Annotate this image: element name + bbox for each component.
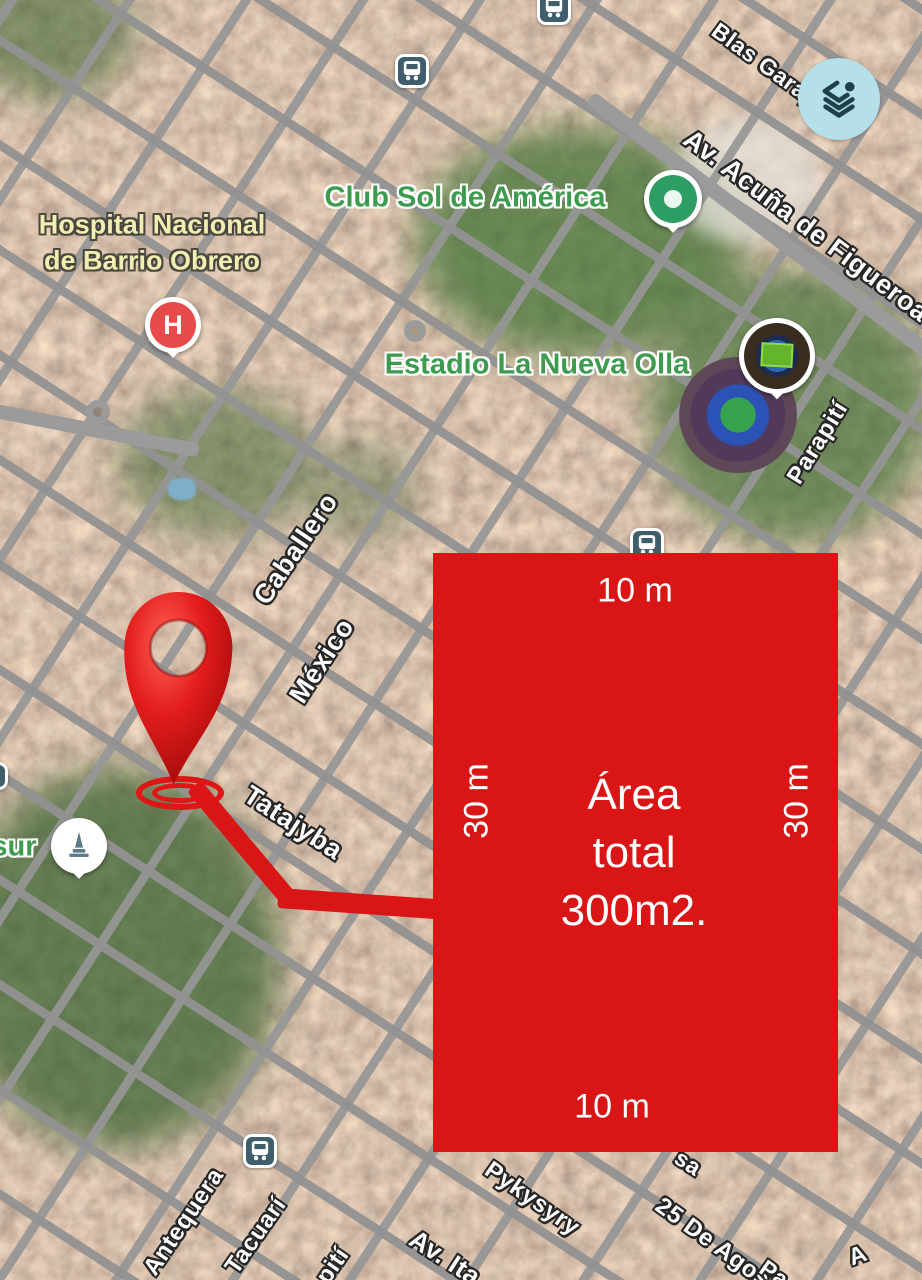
stadium-pitch: [760, 342, 793, 368]
area-total-line2: total: [561, 824, 708, 882]
bus-stop-icon[interactable]: [537, 0, 571, 25]
layers-button[interactable]: [798, 58, 880, 140]
pool: [168, 478, 196, 500]
area-width-top: 10 m: [597, 572, 673, 611]
bus-stop-icon[interactable]: [243, 1134, 277, 1168]
map-canvas[interactable]: Blas Garay Av. Acuña de Figueroa Parapit…: [0, 0, 922, 1280]
area-width-bottom: 10 m: [574, 1088, 650, 1127]
roundabout: [86, 400, 110, 424]
poi-label-hospital[interactable]: Hospital Nacional de Barrio Obrero: [39, 207, 266, 280]
stadium-photo-marker[interactable]: [739, 318, 815, 394]
monument-icon: [59, 826, 99, 866]
hospital-label-line2: de Barrio Obrero: [39, 243, 266, 279]
place-pin-dot: [664, 190, 682, 208]
bus-stop-icon[interactable]: [395, 54, 429, 88]
roundabout: [404, 320, 426, 342]
layers-icon: [816, 76, 862, 122]
location-pin-icon: [110, 582, 245, 788]
area-total-line1: Área: [561, 766, 708, 824]
area-height-right: 30 m: [778, 763, 817, 839]
poi-label-sur-fragment: sur: [0, 831, 37, 864]
area-total-label: Área total 300m2.: [561, 766, 708, 940]
hospital-marker[interactable]: H: [145, 297, 201, 353]
monument-marker[interactable]: [51, 818, 107, 874]
poi-label-estadio[interactable]: Estadio La Nueva Olla: [385, 349, 690, 382]
club-sol-marker[interactable]: [644, 170, 702, 228]
hospital-label-line1: Hospital Nacional: [39, 207, 266, 243]
area-annotation-rect: 10 m 10 m 30 m 30 m Área total 300m2.: [433, 553, 838, 1152]
area-total-line3: 300m2.: [561, 882, 708, 940]
area-height-left: 30 m: [458, 763, 497, 839]
poi-label-club-sol[interactable]: Club Sol de América: [325, 182, 606, 215]
hospital-h-icon: H: [150, 302, 196, 348]
